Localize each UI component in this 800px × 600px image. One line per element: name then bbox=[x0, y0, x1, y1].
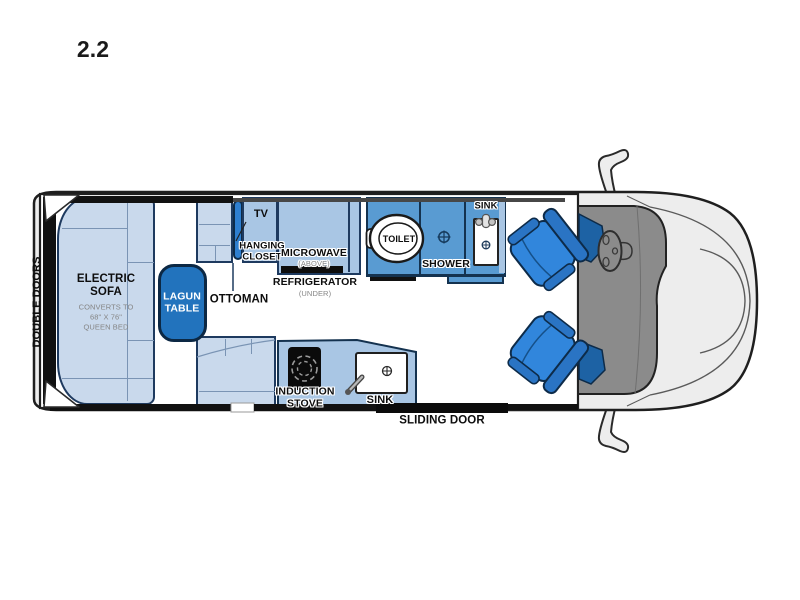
shower-label: SHOWER bbox=[422, 259, 470, 271]
microwave-note-label: (ABOVE) bbox=[298, 260, 330, 268]
floorplan-page: 2.2 DOUBLE DOORS ELECTRIC SOFA CONVERTS … bbox=[0, 0, 800, 600]
ottoman-label: OTTOMAN bbox=[210, 294, 269, 307]
labels-layer: 2.2 DOUBLE DOORS ELECTRIC SOFA CONVERTS … bbox=[0, 0, 800, 600]
refrigerator-note-label: (UNDER) bbox=[299, 290, 331, 298]
kitchen-sink-label: SINK bbox=[367, 394, 394, 406]
toilet-label: TOILET bbox=[383, 234, 415, 244]
sliding-door-label: SLIDING DOOR bbox=[399, 415, 485, 428]
double-doors-label: DOUBLE DOORS bbox=[31, 256, 43, 347]
tv-label: TV bbox=[254, 208, 268, 220]
bathroom-sink-label: SINK bbox=[474, 202, 497, 213]
refrigerator-label: REFRIGERATOR bbox=[273, 277, 357, 289]
sofa-note-label: CONVERTS TO 68" X 76" QUEEN BED bbox=[79, 302, 134, 331]
electric-sofa-label: ELECTRIC SOFA bbox=[77, 273, 135, 299]
lagun-table-label: LAGUN TABLE bbox=[163, 291, 201, 315]
hanging-closet-label: HANGING CLOSET bbox=[239, 241, 285, 262]
induction-stove-label: INDUCTION STOVE bbox=[275, 386, 334, 410]
page-title: 2.2 bbox=[77, 37, 109, 63]
